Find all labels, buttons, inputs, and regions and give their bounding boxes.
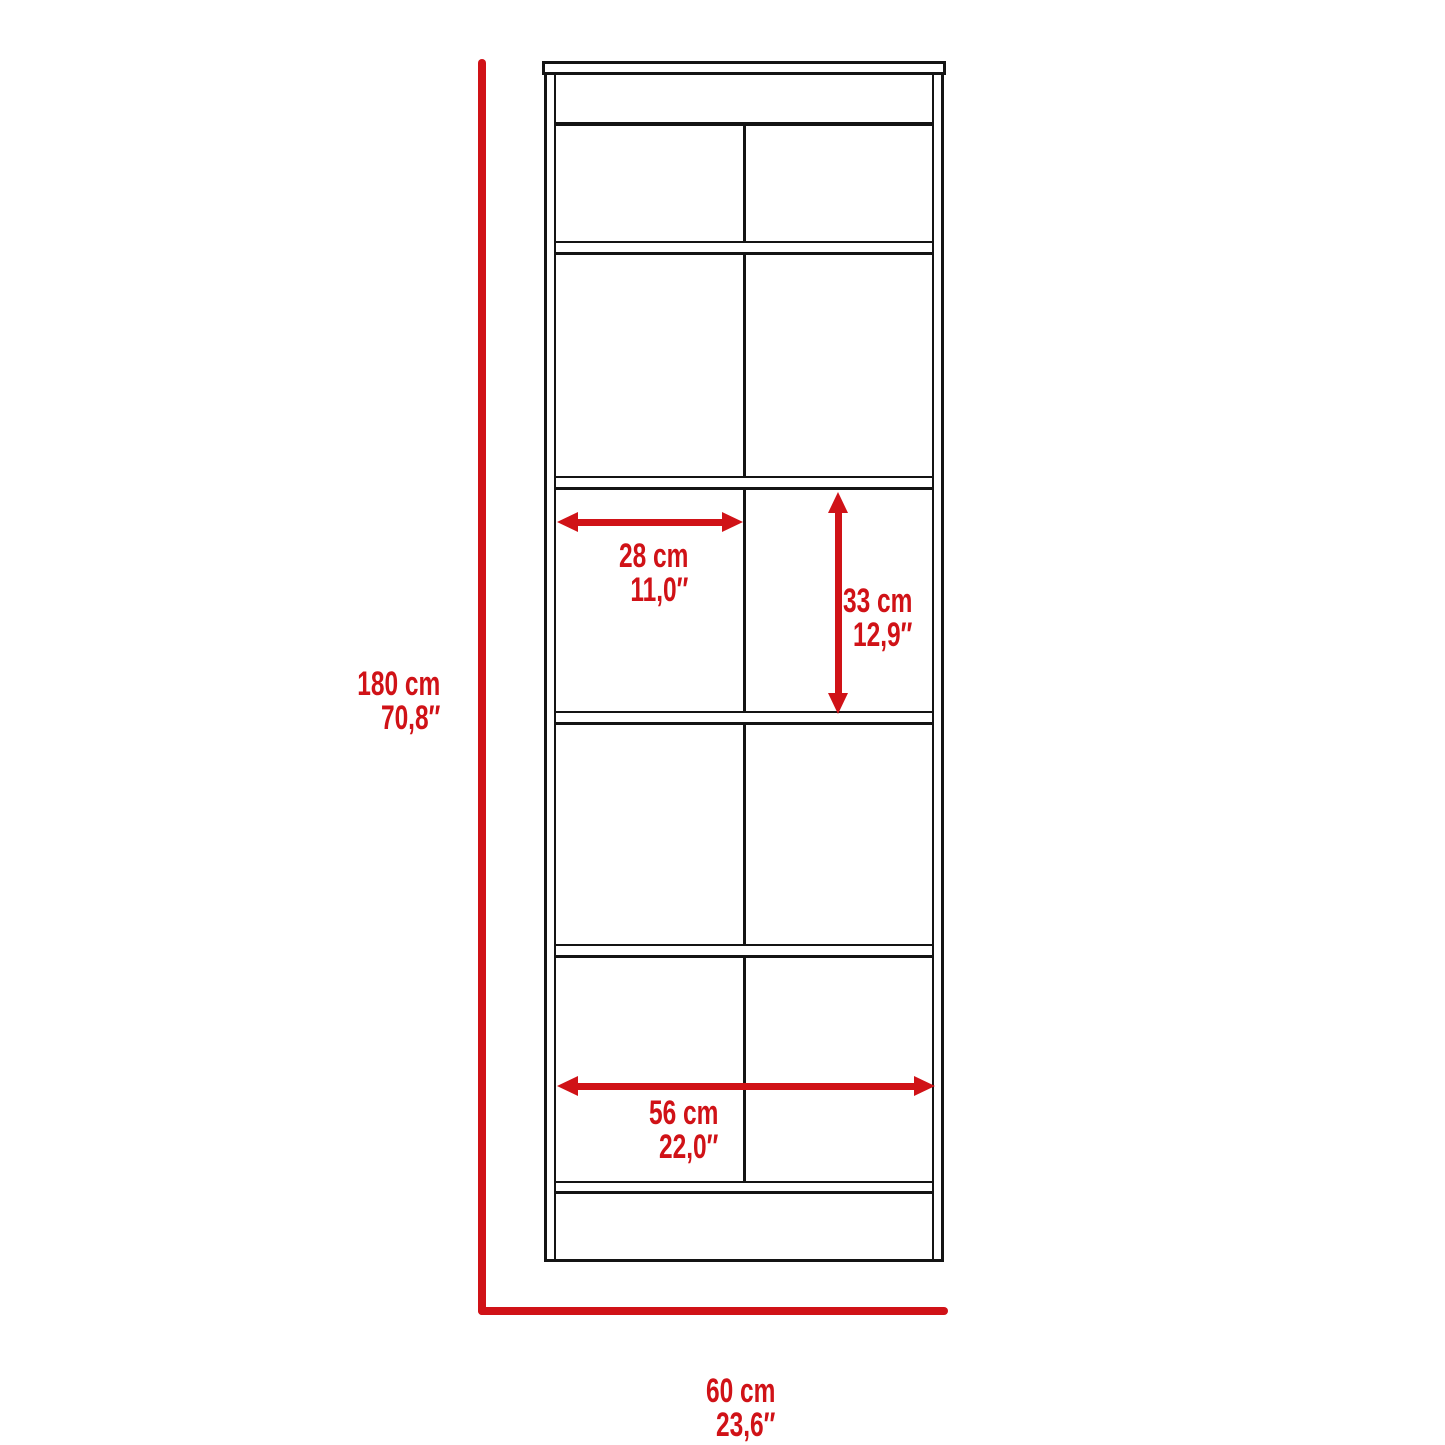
arrowhead-right <box>722 512 743 532</box>
height-dimension-line <box>478 59 486 1315</box>
center-divider <box>743 725 746 944</box>
compartment-height-inch: 12,9″ <box>843 618 912 652</box>
shelf-board <box>556 241 932 255</box>
overall-width-label: 60 cm 23,6″ <box>706 1374 775 1442</box>
compartment-height-cm: 33 cm <box>843 584 912 618</box>
center-divider <box>743 255 746 476</box>
shelf-row-2 <box>556 255 932 476</box>
top-frame-band <box>556 74 932 126</box>
compartment-height-label: 33 cm 12,9″ <box>843 584 912 652</box>
shelf-row-1 <box>556 126 932 241</box>
shelf-board <box>556 476 932 490</box>
height-cm: 180 cm <box>357 667 440 701</box>
interior-width-cm: 56 cm <box>649 1096 718 1130</box>
shelf-board <box>556 944 932 958</box>
arrow-shaft <box>573 519 727 526</box>
compartment-width-arrow <box>557 512 743 532</box>
width-cm: 60 cm <box>706 1374 775 1408</box>
arrow-shaft <box>835 508 842 698</box>
shelf-board <box>556 1181 932 1194</box>
width-dimension-line <box>478 1307 948 1315</box>
interior-width-inch: 22,0″ <box>649 1130 718 1164</box>
height-inch: 70,8″ <box>357 701 440 735</box>
compartment-width-label: 28 cm 11,0″ <box>619 539 688 607</box>
center-divider <box>743 958 746 1181</box>
dimension-diagram: 180 cm 70,8″ 60 cm 23,6″ 28 cm 11,0″ 33 … <box>0 0 1445 1445</box>
shelf-row-5 <box>556 958 932 1181</box>
shelf-board <box>556 711 932 725</box>
shelf-row-4 <box>556 725 932 944</box>
interior-width-label: 56 cm 22,0″ <box>649 1096 718 1164</box>
bookcase-top-cap <box>542 61 946 75</box>
arrowhead-right <box>914 1076 935 1096</box>
compartment-width-inch: 11,0″ <box>619 573 688 607</box>
bottom-kick-band <box>556 1194 932 1259</box>
arrowhead-down <box>828 693 848 714</box>
overall-height-label: 180 cm 70,8″ <box>357 667 440 735</box>
arrow-shaft <box>573 1083 919 1090</box>
center-divider <box>743 126 746 241</box>
interior-width-arrow <box>557 1076 935 1096</box>
width-inch: 23,6″ <box>706 1408 775 1442</box>
compartment-width-cm: 28 cm <box>619 539 688 573</box>
